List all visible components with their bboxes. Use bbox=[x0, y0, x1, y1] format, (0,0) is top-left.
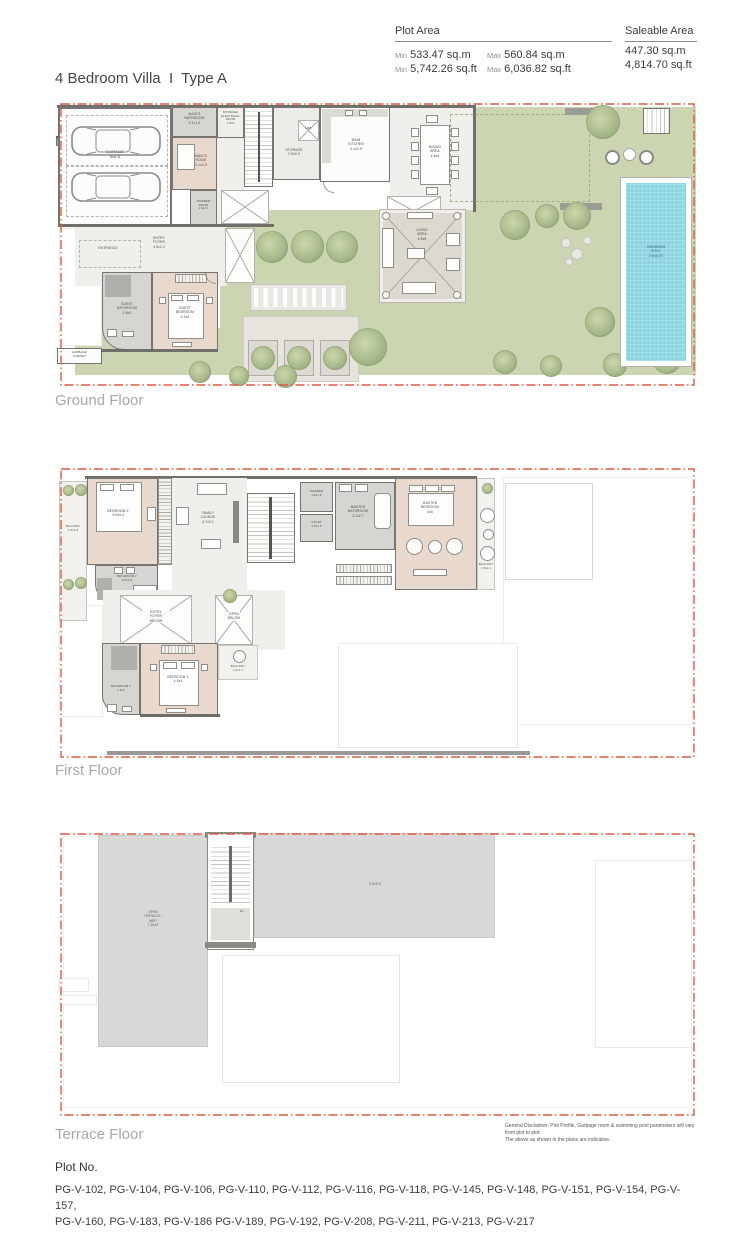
plot-area-min-sqft: Min5,742.26 sq.ft bbox=[395, 59, 477, 77]
saleable-area-heading: Saleable Area bbox=[625, 25, 697, 42]
min-label: Min bbox=[395, 65, 407, 74]
disclaimer: General Disclaimer: Plot Profile, Garbag… bbox=[505, 1123, 705, 1144]
disclaimer-line1: General Disclaimer: Plot Profile, Garbag… bbox=[505, 1123, 705, 1137]
terrace-floor-label: Terrace Floor bbox=[55, 1126, 143, 1143]
terrace-floor-plan: OPEN TERRACE / MEP 7.3x10 9.6x5.5 Dn bbox=[55, 830, 700, 1120]
plot-boundary bbox=[55, 100, 700, 388]
saleable-sqft-value: 4,814.70 sq.ft bbox=[625, 59, 692, 71]
page-title-line1: 4 Bedroom Villa I Type A bbox=[55, 68, 227, 89]
plot-numbers-line1: PG-V-102, PG-V-104, PG-V-106, PG-V-110, … bbox=[55, 1182, 700, 1214]
ground-floor-plan: GARAGE 6x6.5 MAID'S BATHROOM 2.1x1.6 MAI… bbox=[55, 100, 700, 388]
disclaimer-line2: The above as shown in the plans are indi… bbox=[505, 1137, 705, 1144]
plot-area-max-sqft: Max6,036.82 sq.ft bbox=[487, 59, 571, 77]
ground-floor-label: Ground Floor bbox=[55, 392, 143, 409]
first-floor-label: First Floor bbox=[55, 762, 123, 779]
max-sqft-value: 6,036.82 sq.ft bbox=[504, 63, 571, 75]
plot-area-heading: Plot Area bbox=[395, 25, 612, 42]
plot-no-heading: Plot No. bbox=[55, 1160, 98, 1174]
plot-boundary bbox=[55, 465, 700, 760]
plot-boundary bbox=[55, 830, 700, 1120]
saleable-area-block: Saleable Area 447.30 sq.m 4,814.70 sq.ft bbox=[625, 25, 697, 42]
saleable-sqm-value: 447.30 sq.m bbox=[625, 45, 686, 57]
brochure-page: 4 Bedroom Villa I Type A Mirror Plot Are… bbox=[0, 0, 750, 1250]
plot-numbers: PG-V-102, PG-V-104, PG-V-106, PG-V-110, … bbox=[55, 1182, 700, 1230]
plot-area-block: Plot Area Min533.47 sq.m Max560.84 sq.m … bbox=[395, 25, 612, 42]
plot-numbers-line2: PG-V-160, PG-V-183, PG-V-186 PG-V-189, P… bbox=[55, 1214, 700, 1230]
min-sqft-value: 5,742.26 sq.ft bbox=[410, 63, 477, 75]
first-floor-plan: BALCONY 1.5x4.8 BEDROOM 2 3.6x4.4 BATHRO… bbox=[55, 465, 700, 760]
max-label: Max bbox=[487, 65, 501, 74]
